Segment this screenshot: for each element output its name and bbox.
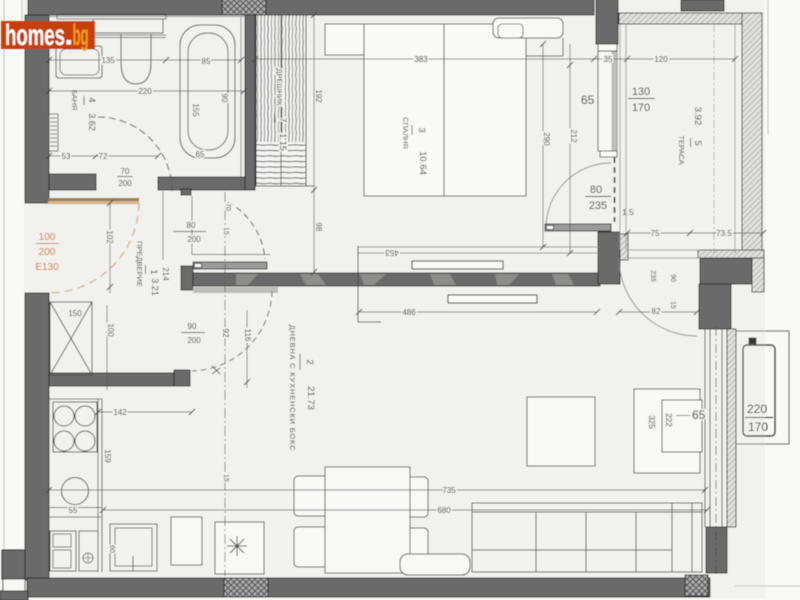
svg-text:60: 60 (108, 545, 115, 553)
svg-text:55: 55 (69, 506, 78, 515)
svg-text:75: 75 (651, 229, 660, 238)
svg-text:192: 192 (314, 89, 323, 103)
svg-text:1.15: 1.15 (278, 133, 288, 151)
svg-text:E130: E130 (35, 262, 59, 273)
svg-text:235: 235 (589, 200, 607, 212)
svg-text:65: 65 (581, 93, 595, 107)
svg-text:453: 453 (385, 248, 399, 257)
svg-text:200: 200 (118, 179, 132, 188)
svg-text:15: 15 (222, 474, 229, 482)
svg-text:70: 70 (121, 167, 130, 176)
svg-text:200: 200 (187, 235, 201, 244)
svg-text:200: 200 (187, 336, 201, 345)
svg-text:90: 90 (188, 322, 197, 331)
svg-text:homes: homes (5, 19, 65, 52)
svg-text:ТЕРАСА: ТЕРАСА (677, 135, 686, 164)
svg-text:БАНЯ: БАНЯ (70, 90, 79, 111)
svg-text:486: 486 (402, 308, 416, 317)
svg-text:2: 2 (304, 359, 315, 364)
svg-text:220: 220 (138, 87, 152, 96)
svg-text:70: 70 (224, 203, 231, 211)
svg-text:135: 135 (101, 56, 115, 65)
svg-text:383: 383 (414, 55, 428, 64)
svg-text:ДНЕВНА С КУХНЕНСКИ БОКС: ДНЕВНА С КУХНЕНСКИ БОКС (288, 325, 297, 452)
svg-text:21.73: 21.73 (305, 386, 316, 410)
svg-text:130: 130 (632, 86, 650, 98)
svg-text:1.5: 1.5 (622, 207, 634, 217)
svg-text:735: 735 (442, 486, 456, 495)
svg-text:222: 222 (664, 413, 673, 427)
svg-text:3.21: 3.21 (150, 278, 160, 296)
svg-text:214: 214 (161, 267, 170, 281)
svg-text:35: 35 (604, 55, 613, 64)
svg-text:3.62: 3.62 (87, 113, 97, 131)
svg-text:4: 4 (87, 97, 97, 102)
svg-text:92: 92 (221, 329, 230, 338)
svg-text:82: 82 (652, 307, 661, 316)
svg-text:ПРЕДВЕРИЕ: ПРЕДВЕРИЕ (135, 241, 144, 287)
svg-text:7: 7 (278, 117, 288, 122)
svg-text:170: 170 (632, 102, 650, 114)
svg-text:72: 72 (99, 152, 108, 161)
svg-text:100: 100 (106, 323, 115, 337)
svg-text:80: 80 (590, 184, 602, 196)
svg-text:53: 53 (62, 152, 71, 161)
svg-text:10.64: 10.64 (417, 151, 428, 175)
svg-text:325: 325 (647, 415, 656, 429)
svg-text:90: 90 (669, 274, 676, 282)
svg-text:235: 235 (649, 270, 656, 282)
svg-text:680: 680 (437, 506, 451, 515)
svg-text:73.5: 73.5 (716, 229, 732, 238)
svg-text:142: 142 (113, 408, 127, 417)
svg-text:155: 155 (191, 103, 200, 117)
svg-text:116: 116 (243, 329, 252, 342)
svg-text:15: 15 (222, 227, 229, 235)
svg-text:СПАЛНЯ: СПАЛНЯ (401, 117, 410, 149)
svg-text:290: 290 (542, 132, 551, 146)
svg-text:220: 220 (747, 402, 767, 416)
svg-text:5: 5 (692, 140, 703, 145)
svg-text:102: 102 (105, 230, 114, 244)
svg-text:1: 1 (149, 269, 159, 274)
svg-text:3.92: 3.92 (692, 107, 703, 126)
svg-text:200: 200 (39, 247, 56, 258)
svg-text:80: 80 (187, 221, 196, 230)
svg-text:65: 65 (692, 408, 706, 422)
svg-text:98: 98 (314, 223, 323, 232)
svg-text:3: 3 (416, 127, 427, 132)
svg-text:65: 65 (196, 150, 205, 159)
svg-text:bg: bg (73, 19, 89, 52)
svg-text:150: 150 (68, 309, 82, 318)
svg-text:85: 85 (202, 57, 211, 66)
svg-text:170: 170 (748, 420, 768, 434)
svg-text:100: 100 (39, 232, 56, 243)
svg-text:ДРЕШНИК: ДРЕШНИК (275, 68, 284, 106)
svg-text:90: 90 (220, 94, 229, 103)
svg-text:120: 120 (654, 55, 668, 64)
svg-text:212: 212 (569, 129, 578, 143)
svg-text:15: 15 (669, 301, 676, 309)
svg-text:159: 159 (103, 449, 112, 463)
